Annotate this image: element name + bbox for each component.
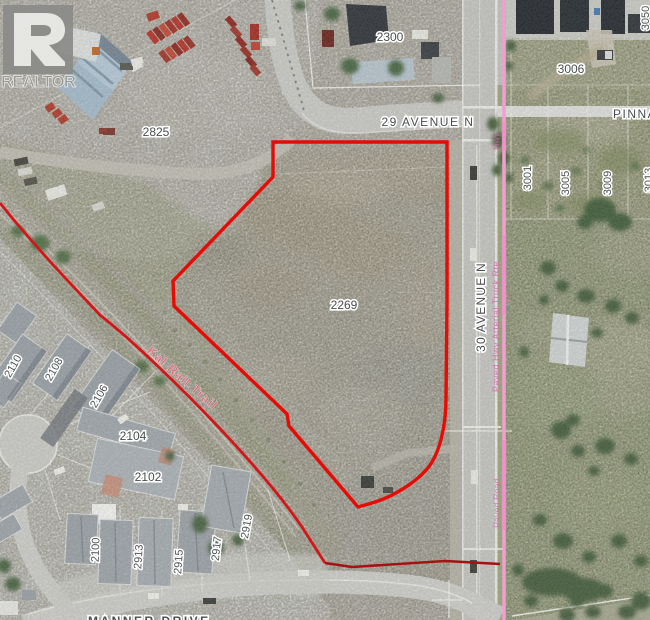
svg-text:2300: 2300 — [377, 30, 404, 44]
svg-text:Hwy: Hwy — [491, 132, 501, 150]
svg-text:30 AVENUE N: 30 AVENUE N — [474, 262, 488, 352]
svg-text:2917: 2917 — [210, 536, 224, 562]
svg-text:3050: 3050 — [640, 6, 650, 30]
svg-text:MANNER DRIVE: MANNER DRIVE — [88, 614, 211, 620]
svg-text:3001: 3001 — [522, 166, 534, 190]
svg-text:REALTOR: REALTOR — [1, 72, 76, 91]
svg-text:2913: 2913 — [132, 544, 146, 569]
svg-text:2100: 2100 — [90, 537, 103, 562]
svg-text:2102: 2102 — [135, 470, 162, 484]
svg-text:2915: 2915 — [172, 549, 186, 574]
svg-text:2825: 2825 — [143, 125, 170, 139]
svg-text:Paved Hwy Arterial Truck Rte: Paved Hwy Arterial Truck Rte — [491, 261, 501, 392]
svg-text:PINNA: PINNA — [613, 107, 650, 121]
svg-text:2269: 2269 — [331, 298, 358, 312]
svg-text:3006: 3006 — [558, 62, 585, 76]
svg-text:29 AVENUE N: 29 AVENUE N — [382, 115, 475, 129]
svg-text:3009: 3009 — [602, 171, 614, 195]
svg-text:3005: 3005 — [560, 171, 572, 195]
svg-text:3013: 3013 — [643, 168, 650, 192]
svg-text:2104: 2104 — [120, 429, 147, 443]
svg-text:Paved Road: Paved Road — [492, 478, 502, 528]
